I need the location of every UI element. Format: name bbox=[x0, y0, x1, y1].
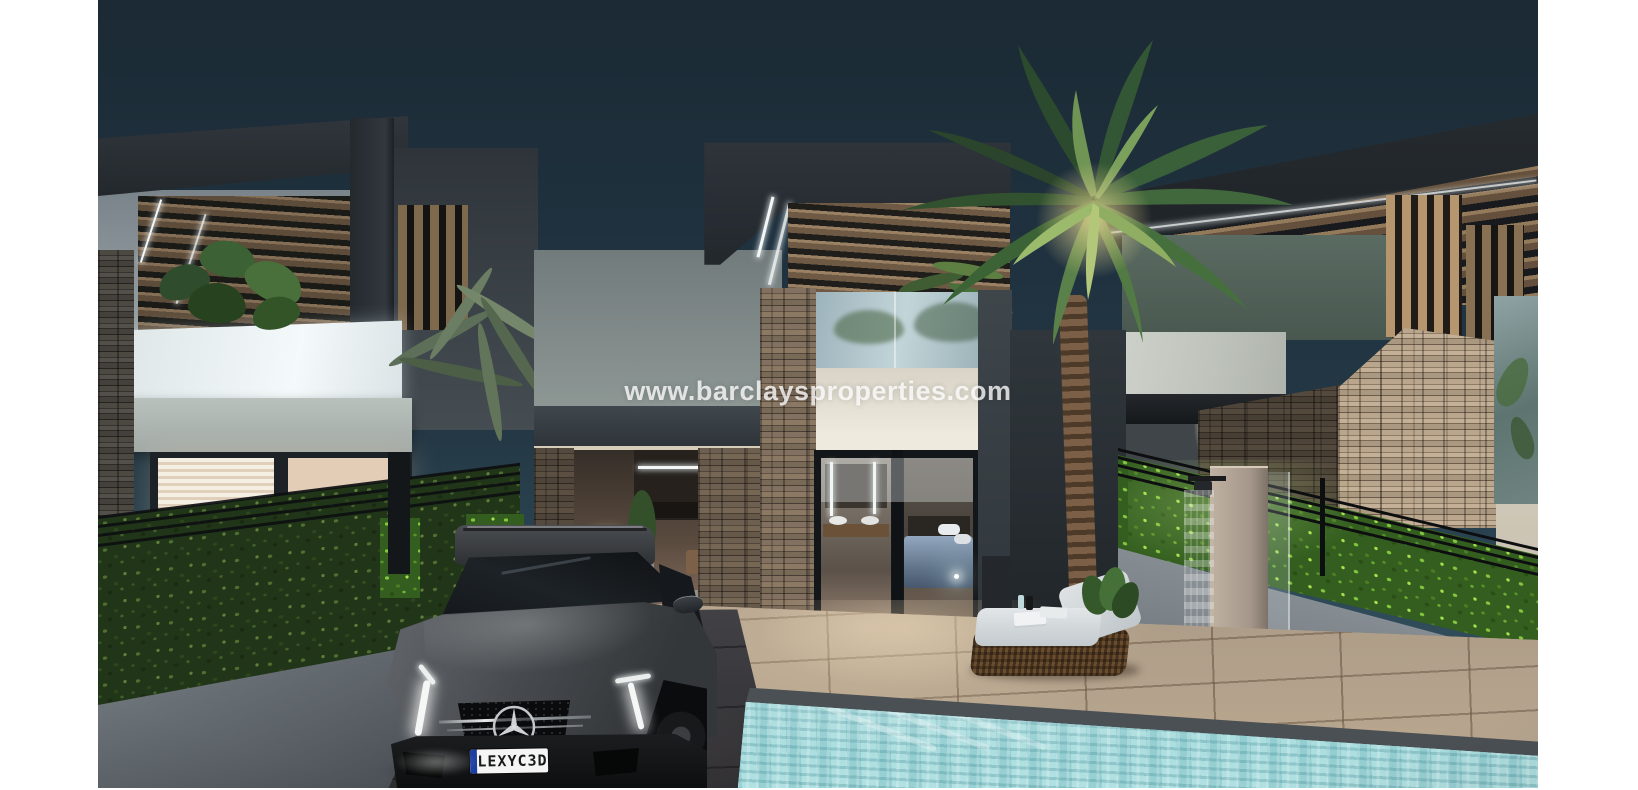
towel bbox=[1040, 606, 1068, 618]
plate-number: LEXYC3D bbox=[477, 751, 548, 770]
vanity bbox=[823, 524, 889, 537]
railing-post-right bbox=[1320, 478, 1325, 576]
roof-highlight bbox=[467, 526, 643, 528]
basin bbox=[861, 516, 879, 525]
property-render: www.barclaysproperties.com bbox=[98, 0, 1538, 788]
pillow bbox=[954, 534, 971, 544]
poolside-plant bbox=[1080, 565, 1140, 635]
watermark: www.barclaysproperties.com bbox=[98, 376, 1538, 407]
bottle bbox=[1018, 595, 1024, 609]
page: www.barclaysproperties.com bbox=[0, 0, 1638, 790]
shower-glass-panel bbox=[1268, 472, 1290, 650]
basin bbox=[829, 516, 847, 525]
license-plate: LEXYC3D bbox=[469, 747, 549, 774]
glass-leaf-reflection bbox=[1506, 414, 1538, 462]
center-villa-stone-column bbox=[760, 288, 816, 640]
car: LEXYC3D bbox=[381, 512, 721, 788]
pool bbox=[728, 680, 1538, 788]
ground-light-glow bbox=[394, 748, 478, 776]
bumper-vent bbox=[593, 748, 639, 776]
palm-tree-canopy bbox=[868, 25, 1328, 375]
roof-rail bbox=[463, 528, 647, 531]
right-villa-wood-louvers bbox=[1386, 195, 1462, 337]
cup bbox=[1026, 596, 1033, 610]
palm-canopy-svg bbox=[868, 25, 1328, 375]
watermark-text: www.barclaysproperties.com bbox=[624, 376, 1011, 406]
pool-light bbox=[1196, 710, 1205, 716]
sheer-blind bbox=[821, 458, 973, 502]
interior-light-dot bbox=[954, 574, 959, 579]
monstera-plant bbox=[148, 235, 318, 345]
